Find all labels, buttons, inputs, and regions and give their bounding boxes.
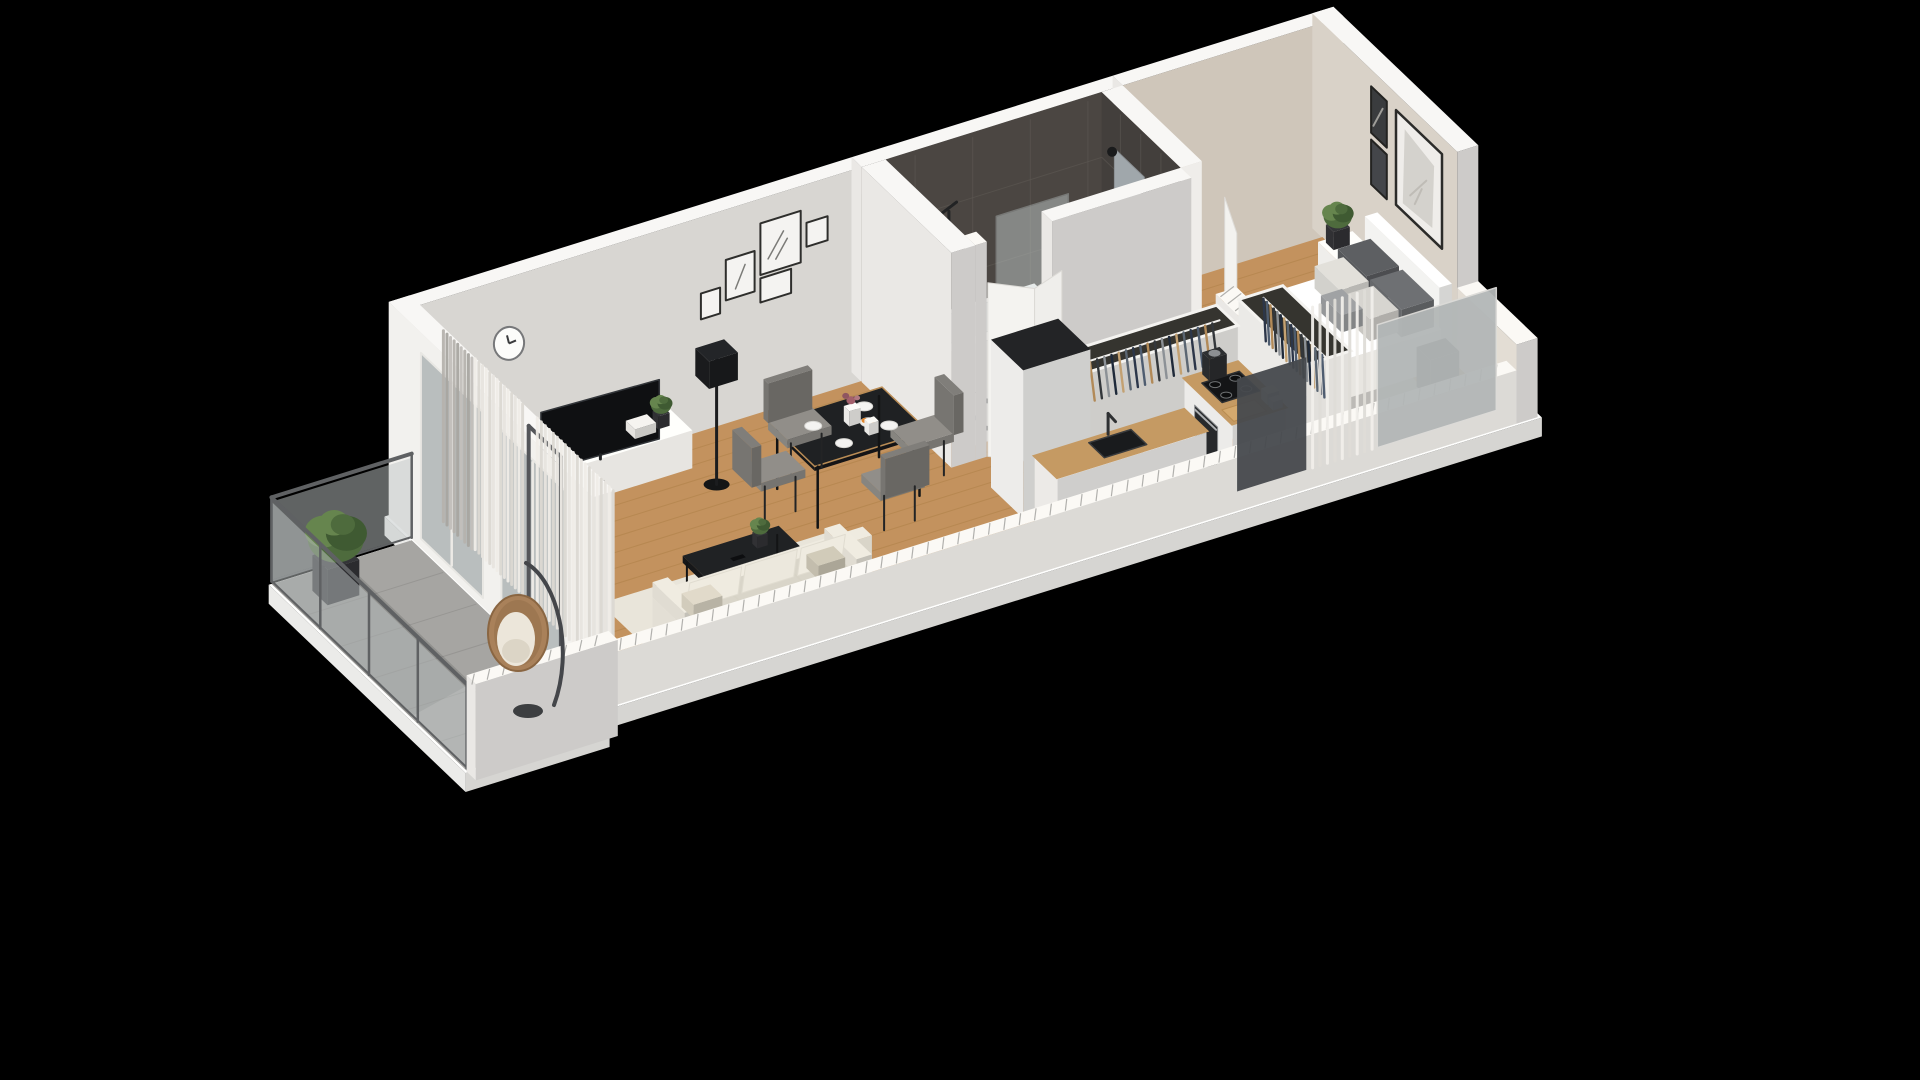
kitchen-window-dark	[1237, 357, 1306, 491]
9	[443, 331, 472, 549]
floor-plan-svg	[0, 0, 1920, 1080]
art-frame-5	[807, 216, 828, 247]
mirror-sconce-1	[1107, 147, 1117, 157]
floor-plan-render	[0, 0, 1920, 1080]
flowers-2	[842, 393, 849, 399]
flowers-3	[854, 395, 860, 400]
coffee-maker-top	[1209, 350, 1221, 357]
flower-vase	[844, 402, 861, 426]
milk-jug	[864, 416, 878, 435]
screenshot-canvas	[0, 0, 1920, 1080]
art-frame-1	[701, 288, 720, 320]
plate-4	[881, 421, 898, 430]
floor-lamp-shade	[695, 339, 738, 389]
plate-3	[836, 439, 853, 448]
cooktop-burner-3	[1221, 392, 1232, 398]
cooktop-burner-1	[1210, 382, 1221, 388]
plate-1	[805, 421, 822, 430]
